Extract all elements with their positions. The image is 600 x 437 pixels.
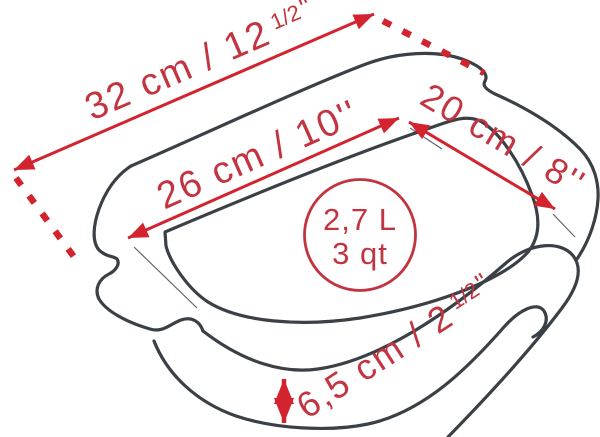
dotted-extension-right	[383, 21, 484, 73]
capacity-liters: 2,7 L	[323, 202, 397, 237]
capacity-quarts: 3 qt	[332, 236, 388, 271]
leader-line-inner-left	[134, 247, 197, 308]
label-outer-length: 32 cm / 121/2''	[78, 0, 321, 129]
dimension-annotations: 32 cm / 121/2'' 26 cm / 10'' 20 cm / 8''…	[14, 0, 593, 426]
leader-line-inner-right	[553, 214, 575, 237]
diagram-canvas: 32 cm / 121/2'' 26 cm / 10'' 20 cm / 8''…	[0, 0, 600, 437]
dotted-extension-left	[16, 178, 80, 265]
label-height: 6,5 cm / 21/2''	[288, 267, 501, 426]
baking-dish-dimension-diagram: 32 cm / 121/2'' 26 cm / 10'' 20 cm / 8''…	[0, 0, 600, 437]
capacity-badge: 2,7 L 3 qt	[305, 180, 416, 291]
